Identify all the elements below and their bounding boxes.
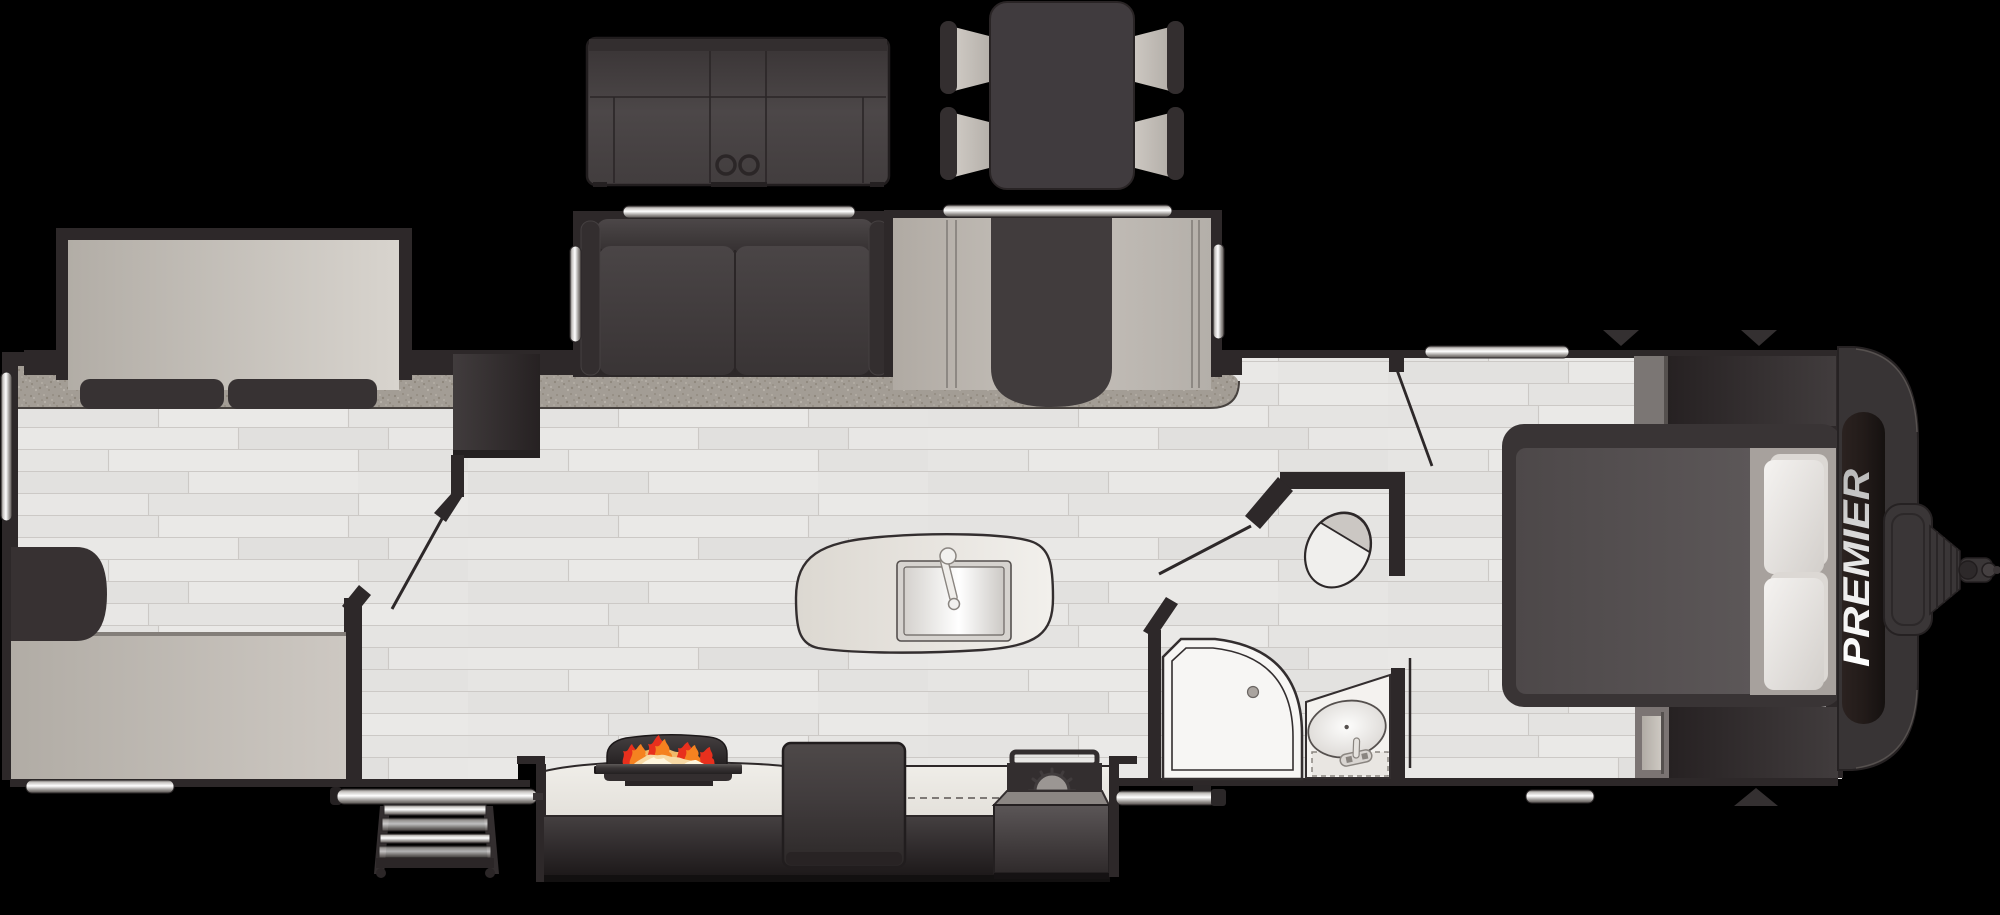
svg-text:PREMIER: PREMIER — [1836, 469, 1877, 667]
